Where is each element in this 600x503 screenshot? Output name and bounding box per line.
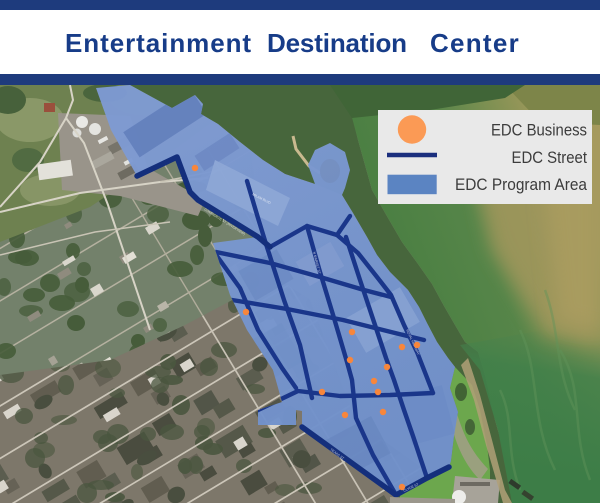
svg-text:Entertainment: Entertainment [65, 28, 252, 58]
svg-text:EDC Business: EDC Business [491, 121, 587, 140]
svg-text:Center: Center [430, 28, 520, 58]
svg-text:EDC Street: EDC Street [512, 148, 588, 167]
svg-text:EDC Program Area: EDC Program Area [455, 175, 587, 194]
svg-text:Destination: Destination [267, 28, 407, 58]
